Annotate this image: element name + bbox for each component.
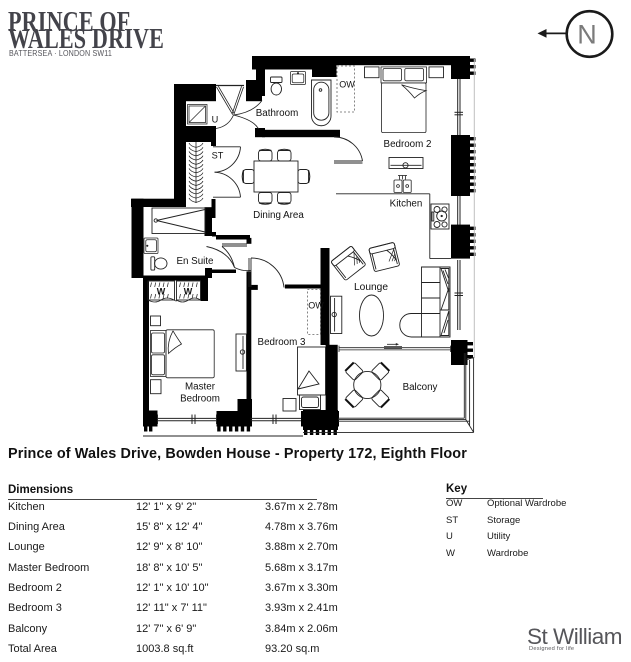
svg-text:En Suite: En Suite (176, 256, 214, 267)
svg-text:OW: OW (308, 301, 324, 311)
svg-text:Lounge: Lounge (354, 282, 388, 293)
svg-text:W: W (157, 287, 166, 297)
svg-text:ST: ST (212, 151, 224, 161)
svg-text:W: W (184, 287, 193, 297)
svg-text:Kitchen: Kitchen (390, 199, 423, 210)
svg-text:Dining Area: Dining Area (253, 210, 304, 221)
svg-text:Bathroom: Bathroom (256, 108, 298, 119)
svg-text:OW: OW (339, 80, 355, 90)
svg-text:U: U (212, 115, 219, 125)
svg-text:N: N (577, 20, 597, 50)
svg-text:Bedroom: Bedroom (180, 394, 220, 405)
svg-text:Balcony: Balcony (403, 382, 438, 393)
svg-text:Bedroom 2: Bedroom 2 (384, 139, 432, 150)
svg-text:Bedroom 3: Bedroom 3 (258, 337, 306, 348)
svg-text:Master: Master (185, 382, 216, 393)
